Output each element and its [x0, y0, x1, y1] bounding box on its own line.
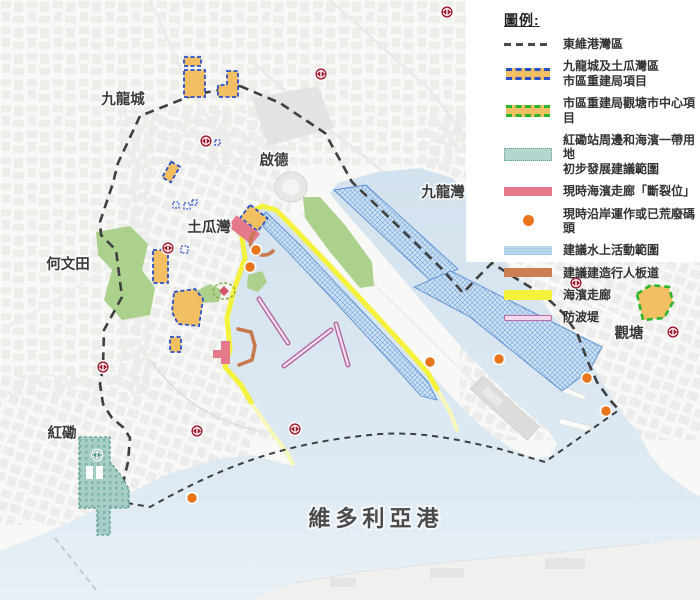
district-label: 土瓜灣: [187, 218, 231, 236]
legend-item-pink-bar: 現時海濱走廊「斷裂位」: [504, 184, 700, 198]
legend-item-teal-zone: 紅磡站周邊和海濱一帶用地初步發展建議範圍: [504, 133, 700, 176]
legend-swatch-ura-blue: [504, 68, 552, 80]
legend-rows: 東維港灣區九龍城及土瓜灣區市區重建局項目市區重建局觀塘市中心項目紅磡站周邊和海濱…: [504, 37, 700, 325]
mtr-station-icon: [200, 135, 213, 148]
district-label: 啟德: [260, 151, 289, 169]
district-label: 九龍灣: [420, 183, 465, 201]
legend-panel: 圖例: 東維港灣區九龍城及土瓜灣區市區重建局項目市區重建局觀塘市中心項目紅磡站周…: [466, 0, 700, 262]
harbour-label: 維多利亞港: [308, 506, 443, 531]
harbour-plan-map: 九龍城啟德九龍灣土瓜灣何文田觀塘紅磡維多利亞港 圖例: 東維港灣區九龍城及土瓜灣…: [0, 0, 700, 600]
legend-swatch-yellow-bar: [504, 290, 552, 300]
legend-swatch-brown-bar: [504, 268, 552, 277]
pier-dot-icon: [494, 354, 505, 365]
legend-label: 防波堤: [563, 310, 599, 324]
mtr-station-icon: [315, 68, 328, 81]
legend-item-ura-green: 市區重建局觀塘市中心項目: [504, 96, 700, 125]
district-label: 紅磡: [48, 424, 77, 442]
legend-label: 現時沿岸運作或已荒廢碼頭: [563, 207, 700, 236]
pier-dot-icon: [601, 406, 612, 417]
legend-swatch-blue-bar: [504, 246, 552, 255]
legend-label: 東維港灣區: [563, 37, 623, 51]
legend-label: 建議建造行人板道: [563, 266, 659, 280]
legend-item-ura-blue: 九龍城及土瓜灣區市區重建局項目: [504, 59, 700, 88]
pier-dot-icon: [245, 262, 256, 273]
legend-swatch-teal-zone: [504, 148, 552, 161]
legend-item-orange-dot: 現時沿岸運作或已荒廢碼頭: [504, 207, 700, 236]
district-label: 觀塘: [615, 324, 644, 342]
mtr-station-icon: [191, 425, 204, 438]
mtr-station-icon: [97, 361, 110, 374]
legend-swatch-boundary-dash: [504, 43, 552, 46]
pier-dot-icon: [251, 245, 262, 256]
legend-swatch-ura-green: [504, 105, 552, 117]
legend-swatch-pink-line: [504, 315, 552, 321]
legend-swatch-pink-bar: [504, 187, 552, 196]
legend-item-brown-bar: 建議建造行人板道: [504, 266, 700, 280]
pier-dot-icon: [187, 493, 198, 504]
legend-swatch-orange-dot: [504, 215, 552, 226]
legend-label: 海濱走廊: [563, 288, 611, 302]
pier-dot-icon: [582, 373, 593, 384]
legend-label: 紅磡站周邊和海濱一帶用地初步發展建議範圍: [563, 133, 700, 176]
legend-item-yellow-bar: 海濱走廊: [504, 288, 700, 302]
district-label: 九龍城: [100, 90, 145, 108]
mtr-station-icon: [92, 450, 103, 461]
legend-label: 九龍城及土瓜灣區市區重建局項目: [563, 59, 659, 88]
legend-label: 建議水上活動範圍: [563, 243, 659, 257]
legend-title: 圖例:: [504, 10, 700, 30]
legend-item-pink-line: 防波堤: [504, 310, 700, 324]
legend-item-boundary-dash: 東維港灣區: [504, 37, 700, 51]
mtr-station-icon: [289, 423, 302, 436]
mtr-station-icon: [667, 326, 680, 339]
legend-item-blue-bar: 建議水上活動範圍: [504, 243, 700, 257]
legend-label: 市區重建局觀塘市中心項目: [563, 96, 700, 125]
legend-label: 現時海濱走廊「斷裂位」: [563, 184, 695, 198]
mtr-station-icon: [162, 242, 175, 255]
stadium: [275, 172, 307, 202]
mtr-station-icon: [441, 6, 454, 19]
pier-dot-icon: [425, 357, 436, 368]
district-label: 何文田: [46, 255, 90, 273]
